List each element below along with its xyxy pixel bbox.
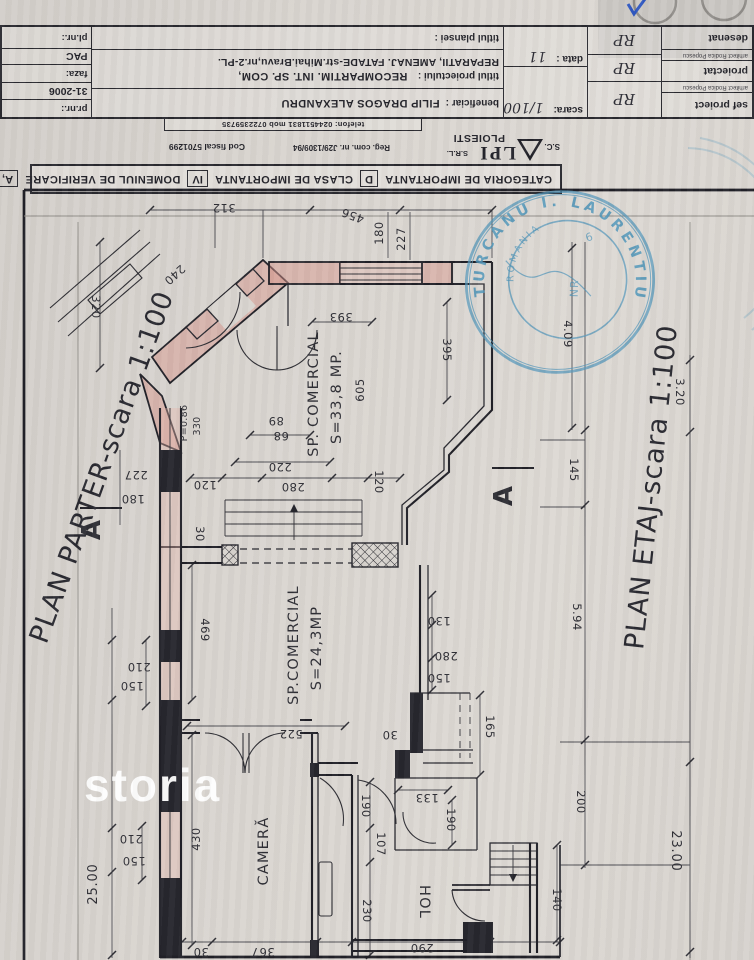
dimension-label: 367 xyxy=(251,945,274,959)
dimension-label: 150 xyxy=(120,679,143,693)
dimension-label: 210 xyxy=(127,660,150,674)
dimension-label: 140 xyxy=(550,888,564,911)
dimension-label: 3.20 xyxy=(673,378,687,406)
dimension-label: 120 xyxy=(193,478,216,492)
dimension-label: 130 xyxy=(427,614,450,628)
dimension-label: 107 xyxy=(374,832,388,855)
storia-watermark: storia xyxy=(84,758,221,812)
dimension-label: 68 xyxy=(273,429,289,443)
room-label: CAMERĂ xyxy=(254,817,272,886)
room-label: SP.COMERCIAL xyxy=(286,585,302,705)
dimension-label: 280 xyxy=(281,480,304,494)
floor-plan-drawing: TURCANU I. LAURENTIU ROMANIA NR 6 PLAN P… xyxy=(0,0,754,960)
dimension-label: 395 xyxy=(440,338,454,361)
dimension-label: 320 xyxy=(89,295,103,318)
plan-parter-title: PLAN PARTER-scara 1:100 xyxy=(24,287,181,648)
section-marker: A xyxy=(77,520,107,540)
dimension-label: 180 xyxy=(121,492,144,506)
room-label: S=33,8 MP. xyxy=(329,350,345,444)
dimension-label: 190 xyxy=(359,794,373,817)
dimension-label: 469 xyxy=(198,618,212,641)
dimension-label: 30 xyxy=(382,728,398,742)
dimension-label: 605 xyxy=(353,378,367,401)
dimension-label: 200 xyxy=(574,790,588,813)
dimension-label: 230 xyxy=(360,899,374,922)
dimension-label: 150 xyxy=(427,671,450,685)
dimension-label: 456 xyxy=(339,205,366,226)
dimension-label: 290 xyxy=(410,941,433,955)
dimension-label: 522 xyxy=(279,727,302,741)
dimension-label: 165 xyxy=(483,715,497,738)
plan-etaj-title: PLAN ETAJ-scara 1:100 xyxy=(619,323,684,651)
room-label: SP. COMERCIAL xyxy=(306,331,322,456)
dimension-label: 89 xyxy=(268,414,284,428)
dimension-label: 190 xyxy=(444,808,458,831)
dimension-label: 393 xyxy=(329,310,352,324)
dimension-label: 5.94 xyxy=(570,603,584,631)
dimension-label: 30 xyxy=(193,526,207,542)
dimension-label: 240 xyxy=(161,262,188,288)
dimension-label: 120 xyxy=(372,470,386,493)
dimension-label: 180 xyxy=(372,221,386,244)
dimension-label: 133 xyxy=(415,791,438,805)
stamp-nr-text: NR xyxy=(568,279,582,297)
dimension-label: 25.00 xyxy=(86,863,101,904)
plan-text-labels: PLAN PARTER-scara 1:100PLAN ETAJ-scara 1… xyxy=(24,201,687,959)
room-label: S=24,3MP xyxy=(309,606,325,691)
dimension-label: 210 xyxy=(119,832,142,846)
dimension-label: 220 xyxy=(268,460,291,474)
dimension-label: 227 xyxy=(124,468,147,482)
walls xyxy=(50,230,560,958)
dimension-label: 312 xyxy=(212,201,235,215)
dimension-label: 280 xyxy=(434,649,457,663)
room-label: HOL xyxy=(416,885,432,919)
stamp-number: 6 xyxy=(584,230,596,245)
dimension-label: 145 xyxy=(567,458,581,481)
dimension-label: 227 xyxy=(394,227,408,250)
section-marker: A xyxy=(489,486,519,506)
notary-stamp: TURCANU I. LAURENTIU ROMANIA NR 6 xyxy=(443,167,677,396)
stamp-ghost-arc xyxy=(688,138,754,330)
dimension-label: 330 xyxy=(192,416,203,435)
dimension-label: 23.00 xyxy=(668,830,683,871)
dimension-label: P=0.86 xyxy=(179,405,190,442)
scanned-floor-plan-photo: CATEGORIA DE IMPORTANTA D CLASA DE IMPOR… xyxy=(0,0,754,960)
dimension-label: 430 xyxy=(189,827,203,850)
dimension-label: 150 xyxy=(122,854,145,868)
dimension-label: 30 xyxy=(193,945,209,959)
dimension-label: 4.09 xyxy=(561,320,575,348)
